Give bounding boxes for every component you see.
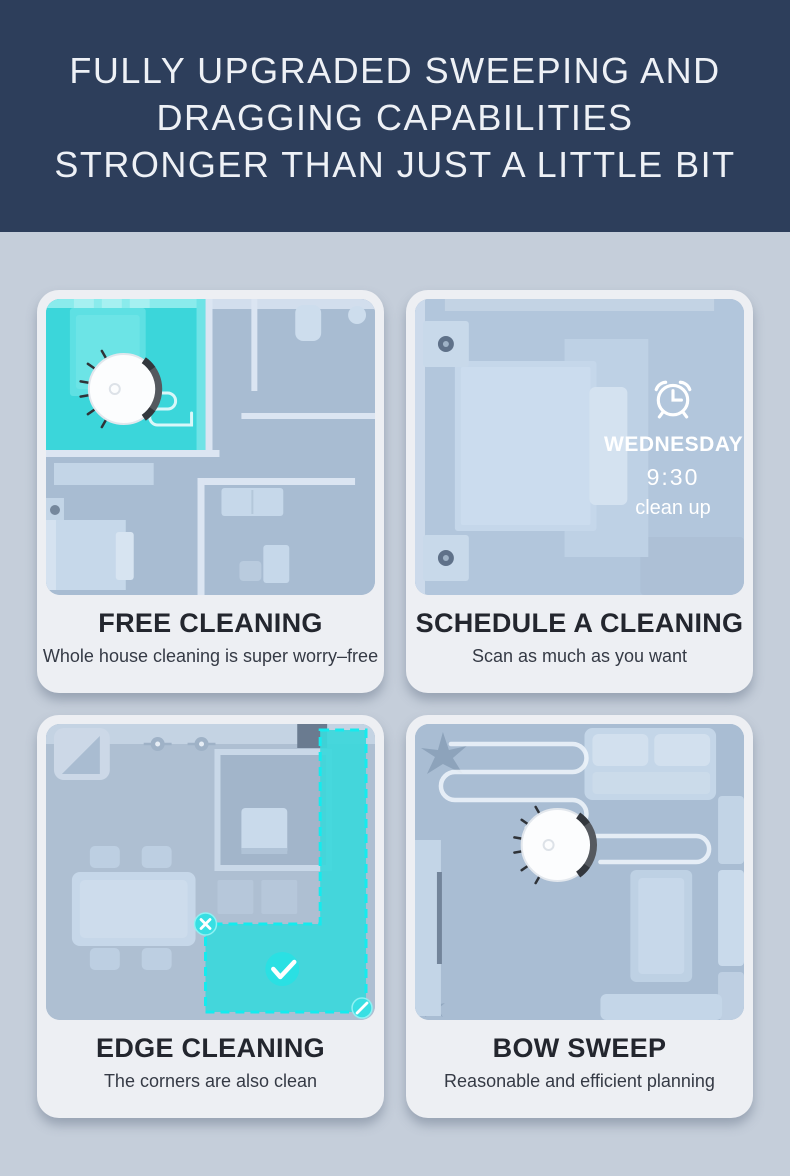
schedule-overlay: WEDNESDAY 9:30 clean up: [604, 377, 742, 520]
schedule-action: clean up: [604, 497, 742, 520]
card-caption: SCHEDULE A CLEANING Scan as much as you …: [406, 595, 753, 667]
card-caption: EDGE CLEANING The corners are also clean: [37, 1020, 384, 1092]
card-subtitle: The corners are also clean: [37, 1071, 384, 1092]
free-cleaning-illustration: [46, 299, 375, 595]
schedule-day: WEDNESDAY: [604, 433, 742, 457]
bottom-sofa: [600, 994, 722, 1020]
rug: [640, 537, 744, 595]
header-line-3: STRONGER THAN JUST A LITTLE BIT: [54, 147, 735, 183]
card-title: FREE CLEANING: [37, 608, 384, 639]
nightstand-bottom: [423, 535, 469, 581]
nightstand-top: [423, 321, 469, 367]
resize-handle-icon: [352, 998, 372, 1018]
promo-page: FULLY UPGRADED SWEEPING AND DRAGGING CAP…: [0, 0, 790, 1176]
card-title: BOW SWEEP: [406, 1033, 753, 1064]
card-title: SCHEDULE A CLEANING: [406, 608, 753, 639]
card-title: EDGE CLEANING: [37, 1033, 384, 1064]
alarm-clock-icon: [652, 377, 694, 419]
check-icon: [265, 952, 299, 986]
card-subtitle: Whole house cleaning is super worry–free: [37, 646, 384, 667]
card-schedule-a-cleaning: WEDNESDAY 9:30 clean up SCHEDULE A CLEAN…: [406, 290, 753, 693]
header-banner: FULLY UPGRADED SWEEPING AND DRAGGING CAP…: [0, 0, 790, 232]
floor-plan-graphic: [46, 299, 375, 595]
card-caption: FREE CLEANING Whole house cleaning is su…: [37, 595, 384, 667]
living-room-graphic: [415, 724, 744, 1020]
edge-cleaning-illustration: [46, 724, 375, 1020]
schedule-cleaning-illustration: WEDNESDAY 9:30 clean up: [415, 299, 744, 595]
header-line-1: FULLY UPGRADED SWEEPING AND: [69, 53, 720, 89]
close-icon: [195, 913, 217, 935]
schedule-time: 9:30: [604, 464, 742, 491]
header-line-2: DRAGGING CAPABILITIES: [157, 100, 634, 136]
sofa: [584, 728, 716, 800]
card-free-cleaning: FREE CLEANING Whole house cleaning is su…: [37, 290, 384, 693]
card-caption: BOW SWEEP Reasonable and efficient plann…: [406, 1020, 753, 1092]
feature-grid: FREE CLEANING Whole house cleaning is su…: [0, 232, 790, 1118]
door-icon: [54, 728, 110, 780]
coffee-table: [630, 870, 692, 982]
card-edge-cleaning: EDGE CLEANING The corners are also clean: [37, 715, 384, 1118]
kitchen-plan-graphic: [46, 724, 375, 1020]
card-subtitle: Reasonable and efficient planning: [406, 1071, 753, 1092]
card-subtitle: Scan as much as you want: [406, 646, 753, 667]
wardrobe: [54, 463, 154, 485]
card-bow-sweep: BOW SWEEP Reasonable and efficient plann…: [406, 715, 753, 1118]
bow-sweep-illustration: [415, 724, 744, 1020]
